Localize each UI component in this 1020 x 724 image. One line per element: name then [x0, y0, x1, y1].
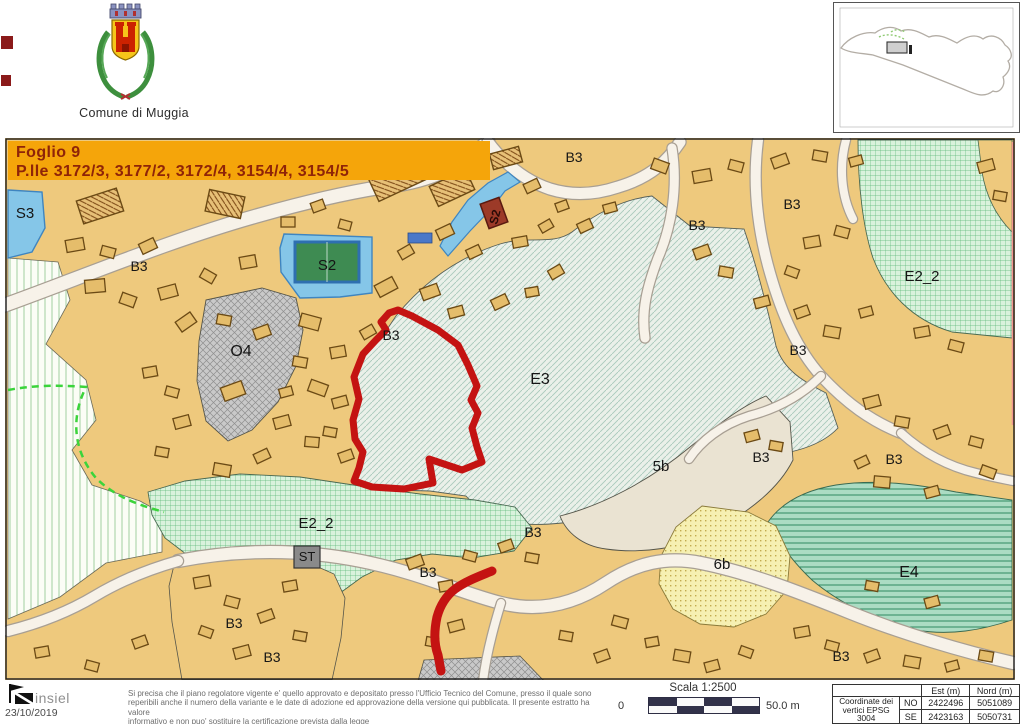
shield-icon: [112, 20, 139, 60]
registration-mark: [1, 36, 13, 49]
scale-bar-max: 50.0 m: [766, 700, 800, 712]
zone-label: B3: [832, 648, 849, 664]
crown-icon: [110, 4, 141, 18]
scale-bar: [648, 697, 760, 714]
insiel-logo-text: insiel: [35, 690, 70, 706]
insiel-logo-icon: [6, 683, 36, 707]
disclaimer: Si precisa che il piano regolatore vigen…: [128, 689, 606, 724]
zone-label: 5b: [653, 458, 670, 475]
zone-label: B3: [263, 649, 280, 665]
coords-nord-value: 5051089: [970, 697, 1020, 710]
disclaimer-line: reperibili anche il numero della variant…: [128, 698, 606, 717]
zone-label: B3: [783, 196, 800, 212]
coords-col-nord: Nord (m): [970, 685, 1020, 697]
zone-label: B3: [382, 327, 399, 343]
zone-label: B3: [688, 217, 705, 233]
zone-label: B3: [130, 258, 147, 274]
zone-label: ST: [299, 549, 316, 564]
road-sign: [408, 233, 432, 243]
zone-label: B3: [565, 149, 582, 165]
coords-est-value: 2423163: [922, 710, 970, 723]
coords-row-label: Coordinate dei vertici EPSG 3004: [833, 697, 900, 724]
zone-label: E4: [899, 564, 919, 581]
disclaimer-line: Si precisa che il piano regolatore vigen…: [128, 689, 606, 698]
inset-extent-rectangle: [887, 42, 907, 53]
zone-label: B3: [419, 564, 436, 580]
disclaimer-line: informativo e non puo' sostituire la cer…: [128, 717, 606, 724]
scale-bar-zero: 0: [618, 700, 624, 712]
inset-locator-map: [833, 2, 1020, 133]
zone-label: E2_2: [298, 515, 333, 532]
zone-label: B3: [524, 524, 541, 540]
zone-b3-island: [169, 551, 345, 680]
zone-label: O4: [230, 343, 251, 360]
zone-label: B3: [752, 449, 769, 465]
zone-label: E2_2: [904, 268, 939, 285]
muggia-coat-of-arms: [88, 2, 164, 102]
coords-nord-value: 5050731: [970, 710, 1020, 723]
inset-tick: [909, 45, 912, 54]
print-date: 23/10/2019: [5, 707, 58, 719]
scale-label: Scala 1:2500: [646, 682, 760, 694]
municipality-name: Comune di Muggia: [76, 106, 192, 120]
coordinates-table: Est (m) Nord (m) Coordinate dei vertici …: [832, 684, 1020, 724]
map-title-block: Foglio 9 P.lle 3172/3, 3177/2, 3172/4, 3…: [8, 141, 490, 180]
zone-label: B3: [225, 615, 242, 631]
zoning-map: S2 S3B3S2B3B3B3E2_2B3O4E3B3B35bB3E2_2STB…: [5, 138, 1015, 680]
zone-label: B3: [885, 451, 902, 467]
zone-label: B3: [789, 342, 806, 358]
zone-label: S3: [16, 205, 34, 222]
coords-corner: SE: [900, 710, 922, 723]
coords-col-est: Est (m): [922, 685, 970, 697]
coords-corner: NO: [900, 697, 922, 710]
map-title-particelle: P.lle 3172/3, 3177/2, 3172/4, 3154/4, 31…: [16, 163, 349, 180]
registration-mark: [1, 75, 11, 86]
coords-est-value: 2422496: [922, 697, 970, 710]
zone-label: 6b: [714, 556, 731, 573]
map-title-foglio: Foglio 9: [16, 144, 81, 161]
page: Comune di Muggia: [0, 0, 1020, 724]
zone-label: S2: [318, 257, 336, 274]
zone-label: E3: [530, 371, 550, 388]
